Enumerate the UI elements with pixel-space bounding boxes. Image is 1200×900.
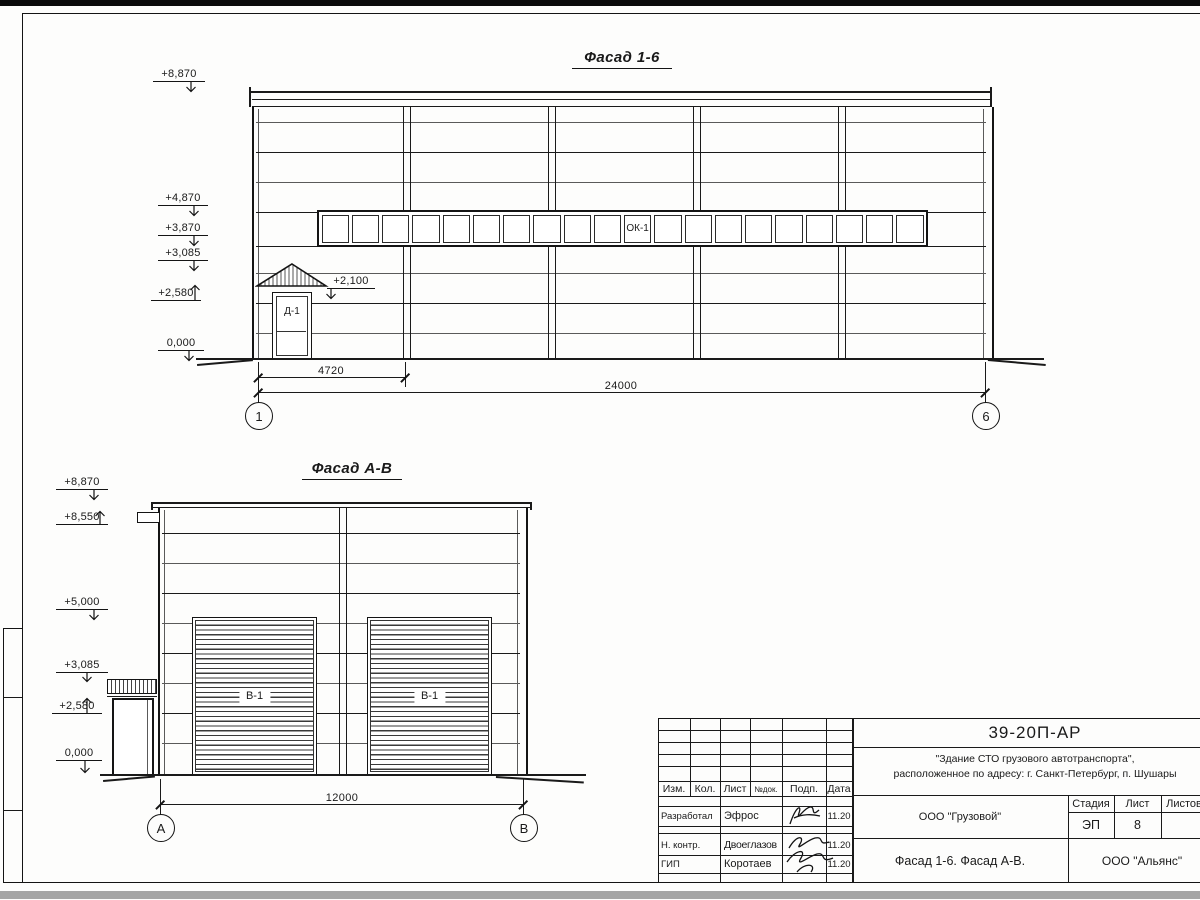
elevation-mark: +8,870 (56, 476, 108, 490)
gate-mark-label: В-1 (414, 689, 445, 703)
signature (786, 800, 826, 830)
wall-inner-edge (258, 109, 259, 360)
left-margin-cells (3, 628, 23, 883)
elevation-arrow-up-icon (93, 510, 107, 525)
elevation-mark: +3,085 (158, 247, 208, 261)
scan-bottom-shadow (0, 891, 1200, 899)
elevation-arrow-icon (87, 490, 101, 501)
window-pane (473, 215, 500, 243)
title-block-line (852, 747, 1200, 748)
window-pane (322, 215, 349, 243)
company-name: ООО "Альянс" (1068, 840, 1200, 882)
roller-shutter: В-1 (195, 620, 314, 772)
elevation-arrow-icon (78, 761, 92, 774)
dimension-value: 24000 (586, 380, 656, 392)
dimension-value: 12000 (310, 792, 374, 804)
ground-line (196, 358, 1044, 360)
elevation-arrow-up-icon (188, 284, 202, 301)
window-pane (745, 215, 772, 243)
signature (783, 832, 837, 876)
parapet-top-line (250, 91, 992, 93)
elevation-mark: 0,000 (158, 337, 204, 351)
tb-role: Н. контр. (661, 837, 719, 853)
project-name: "Здание СТО грузового автотранспорта", р… (858, 752, 1200, 782)
panel-joint-line (256, 303, 986, 304)
window-pane (715, 215, 742, 243)
gate: В-1 (192, 617, 317, 775)
window-pane (775, 215, 802, 243)
panel-joint-line (256, 152, 986, 153)
annex-inner-edge (147, 700, 148, 775)
tb-role: ГИП (661, 856, 719, 872)
elevation-arrow-icon (184, 82, 198, 93)
door-canopy (255, 261, 329, 289)
sheet-label: Лист (1114, 796, 1161, 811)
window-pane (503, 215, 530, 243)
facade16-title: Фасад 1-6 (572, 49, 672, 69)
tb-col-ndok: №док. (750, 782, 782, 796)
window-pane (564, 215, 591, 243)
window-pane (352, 215, 379, 243)
roller-shutter: В-1 (370, 620, 489, 772)
window-pane (382, 215, 409, 243)
dimension-value: 4720 (301, 365, 361, 377)
roof-pipe (137, 512, 159, 523)
window-pane (594, 215, 621, 243)
parapet-end-cap (990, 87, 992, 107)
axis-label: В (520, 821, 529, 836)
elevation-mark: +3,870 (158, 222, 208, 236)
title-block-line (1068, 812, 1200, 813)
gate-mark-label: В-1 (239, 689, 270, 703)
stage-label: Стадия (1068, 796, 1114, 811)
gate: В-1 (367, 617, 492, 775)
axis-marker: А (147, 814, 175, 842)
entrance-door: Д-1 (272, 292, 312, 360)
window-pane-label: ОК-1 (624, 215, 651, 243)
roof-cap-end (151, 502, 153, 510)
window-pane (412, 215, 439, 243)
elevation-arrow-icon (182, 351, 196, 362)
tb-role: Разработал (661, 808, 719, 824)
door-divider (276, 331, 306, 332)
axis-label: 6 (982, 409, 989, 424)
client-name: ООО "Грузовой" (852, 798, 1068, 836)
ground-line (100, 774, 586, 776)
elevation-mark: +4,870 (158, 192, 208, 206)
tb-col-kol: Кол. (690, 782, 720, 796)
annex-canopy-line (107, 696, 157, 697)
project-name-line2: расположенное по адресу: г. Санкт-Петерб… (858, 767, 1200, 782)
title-block-line (658, 766, 852, 767)
tb-name: Двоеглазов (724, 837, 784, 853)
window-pane (533, 215, 560, 243)
axis-marker: В (510, 814, 538, 842)
elevation-mark: +2,580 (52, 700, 102, 714)
window-mark-label: ОК-1 (626, 223, 649, 234)
ribbon-window: ОК-1 (317, 210, 928, 247)
tb-col-list: Лист (720, 782, 750, 796)
extension-line (523, 779, 524, 815)
elevation-mark: +2,100 (327, 275, 375, 289)
elevation-arrow-icon (87, 610, 101, 621)
extension-line (985, 362, 986, 403)
roof-cap-end (530, 502, 532, 510)
door-mark-label: Д-1 (273, 306, 311, 317)
sheets-label: Листов (1161, 796, 1200, 811)
tb-name: Коротаев (724, 856, 782, 872)
parapet-end-cap (249, 87, 251, 107)
door-inner-frame (276, 296, 308, 356)
window-pane (836, 215, 863, 243)
left-margin-divider (3, 810, 22, 811)
panel-joint-line (256, 333, 986, 334)
panel-joint-line (256, 182, 986, 183)
axis-marker: 1 (245, 402, 273, 430)
dimension-line (160, 804, 523, 805)
annex (112, 698, 154, 775)
window-pane (685, 215, 712, 243)
dimension-line (258, 392, 985, 393)
elevation-mark: +3,085 (56, 659, 108, 673)
tb-date: 11.20 (826, 808, 852, 824)
project-name-line1: "Здание СТО грузового автотранспорта", (858, 752, 1200, 767)
wall-inner-edge (983, 109, 984, 360)
elevation-arrow-icon (324, 289, 338, 300)
tb-name: Эфрос (724, 808, 780, 824)
title-block-line (658, 754, 852, 755)
window-pane (896, 215, 923, 243)
elevation-mark: 0,000 (56, 747, 102, 761)
elevation-arrow-icon (187, 206, 201, 217)
window-pane (654, 215, 681, 243)
extension-line (160, 779, 161, 815)
elevation-mark: +5,000 (56, 596, 108, 610)
title-block-line (658, 742, 852, 743)
stage-value: ЭП (1068, 814, 1114, 836)
elevation-arrow-icon (80, 672, 94, 683)
extension-line (258, 362, 259, 403)
tb-col-izm: Изм. (658, 782, 690, 796)
axis-marker: 6 (972, 402, 1000, 430)
doc-number: 39-20П-АР (860, 722, 1200, 744)
panel-joint-line (256, 273, 986, 274)
window-pane (866, 215, 893, 243)
window-pane (806, 215, 833, 243)
window-pane (443, 215, 470, 243)
elevation-mark: +8,870 (153, 68, 205, 82)
column-line (339, 508, 347, 776)
tb-col-data: Дата (826, 782, 852, 796)
wall-inner-edge (517, 510, 518, 776)
panel-joint-line (256, 122, 986, 123)
annex-canopy (107, 679, 157, 694)
elevation-arrow-up-icon (80, 697, 94, 714)
roof-cap-line (151, 502, 532, 504)
parapet-mid-line (252, 99, 990, 100)
scan-top-edge (0, 0, 1200, 6)
drawing-sheet: Фасад 1-6 ОК-1 (0, 0, 1200, 900)
title-block-line (658, 796, 852, 797)
sheet-title: Фасад 1-6. Фасад А-В. (852, 840, 1068, 882)
sheet-value: 8 (1114, 814, 1161, 836)
tb-col-podp: Подп. (782, 782, 826, 796)
left-margin-divider (3, 697, 22, 698)
title-block-line (658, 730, 852, 731)
dimension-line (258, 377, 405, 378)
axis-label: А (157, 821, 166, 836)
axis-label: 1 (255, 409, 262, 424)
elevation-arrow-icon (187, 261, 201, 272)
wall-inner-edge (164, 510, 165, 776)
facadeAB-title: Фасад А-В (302, 460, 402, 480)
elevation-arrow-icon (187, 236, 201, 247)
